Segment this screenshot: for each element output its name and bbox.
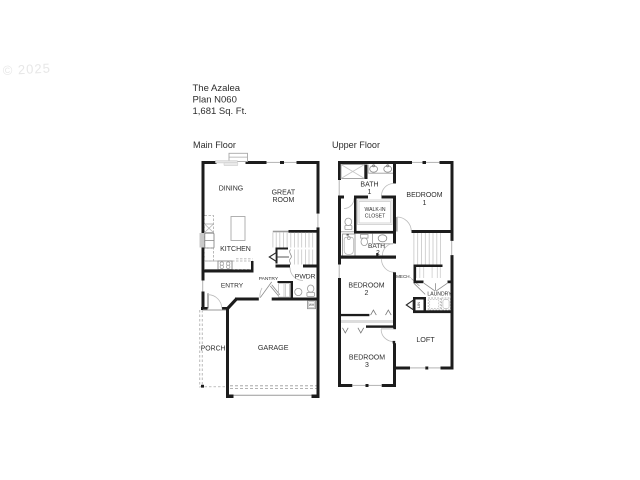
svg-text:© 2025: © 2025 <box>2 60 51 77</box>
svg-text:BEDROOM: BEDROOM <box>349 355 385 362</box>
svg-text:LOFT: LOFT <box>416 335 435 344</box>
svg-text:LAUNDRY: LAUNDRY <box>427 292 452 298</box>
svg-text:KITCHEN: KITCHEN <box>220 246 251 253</box>
svg-text:Plan N060: Plan N060 <box>193 94 237 105</box>
svg-text:PANTRY: PANTRY <box>259 276 279 282</box>
svg-text:LIN: LIN <box>417 302 421 308</box>
svg-text:CLOSET: CLOSET <box>365 213 385 219</box>
svg-text:1: 1 <box>423 200 427 207</box>
svg-text:DINING: DINING <box>219 186 244 193</box>
svg-text:BATH: BATH <box>360 181 378 188</box>
svg-text:WH: WH <box>309 303 315 307</box>
svg-text:ROOM: ROOM <box>273 197 295 204</box>
svg-text:Main Floor: Main Floor <box>193 140 236 150</box>
svg-text:1,681 Sq. Ft.: 1,681 Sq. Ft. <box>193 106 247 117</box>
svg-text:WALK-IN: WALK-IN <box>364 207 385 213</box>
svg-text:GARAGE: GARAGE <box>258 343 289 352</box>
svg-text:Upper Floor: Upper Floor <box>332 140 380 150</box>
svg-text:GREAT: GREAT <box>272 189 296 196</box>
svg-text:PORCH: PORCH <box>201 345 226 352</box>
svg-text:2: 2 <box>365 290 369 297</box>
svg-text:PWDR: PWDR <box>295 273 316 280</box>
svg-text:The Azalea: The Azalea <box>193 83 241 94</box>
svg-text:BEDROOM: BEDROOM <box>406 192 442 199</box>
svg-text:1: 1 <box>368 189 372 196</box>
svg-text:MECH.: MECH. <box>396 274 411 279</box>
svg-text:3: 3 <box>365 362 369 369</box>
svg-text:ENTRY: ENTRY <box>221 282 244 289</box>
svg-text:BEDROOM: BEDROOM <box>348 283 384 290</box>
